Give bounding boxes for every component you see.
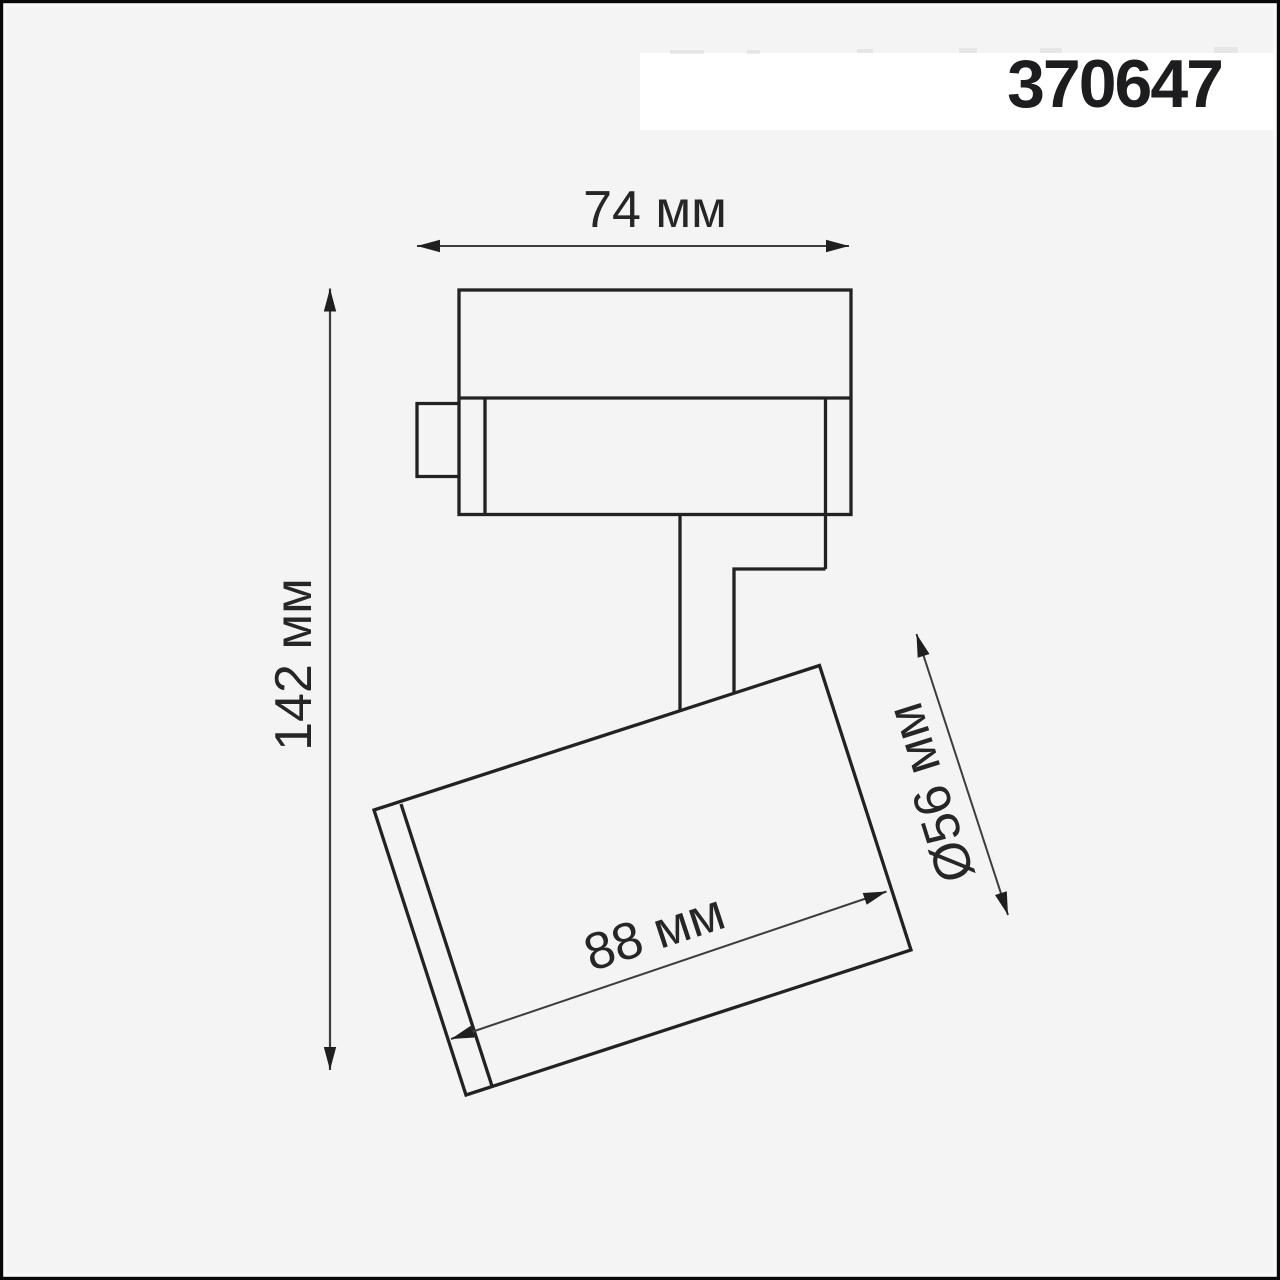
svg-text:74 мм: 74 мм bbox=[583, 181, 727, 239]
svg-text:142 мм: 142 мм bbox=[265, 578, 323, 751]
svg-text:370647: 370647 bbox=[1007, 46, 1222, 122]
